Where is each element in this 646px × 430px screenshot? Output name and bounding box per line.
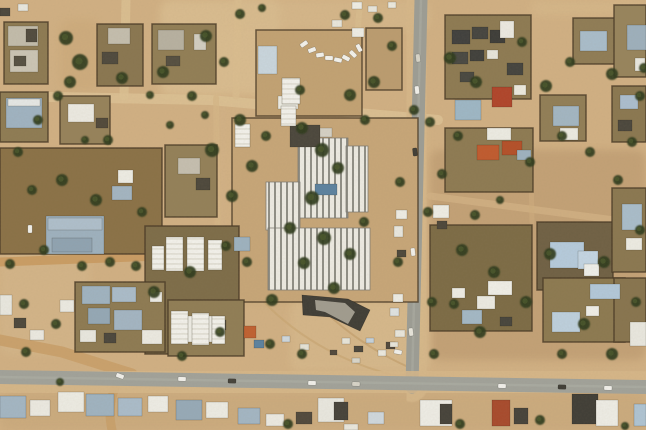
sand-noise-overlay — [0, 0, 646, 430]
texture-layer — [0, 0, 646, 430]
satellite-image — [0, 0, 646, 430]
satellite-photo-canvas — [0, 0, 646, 430]
